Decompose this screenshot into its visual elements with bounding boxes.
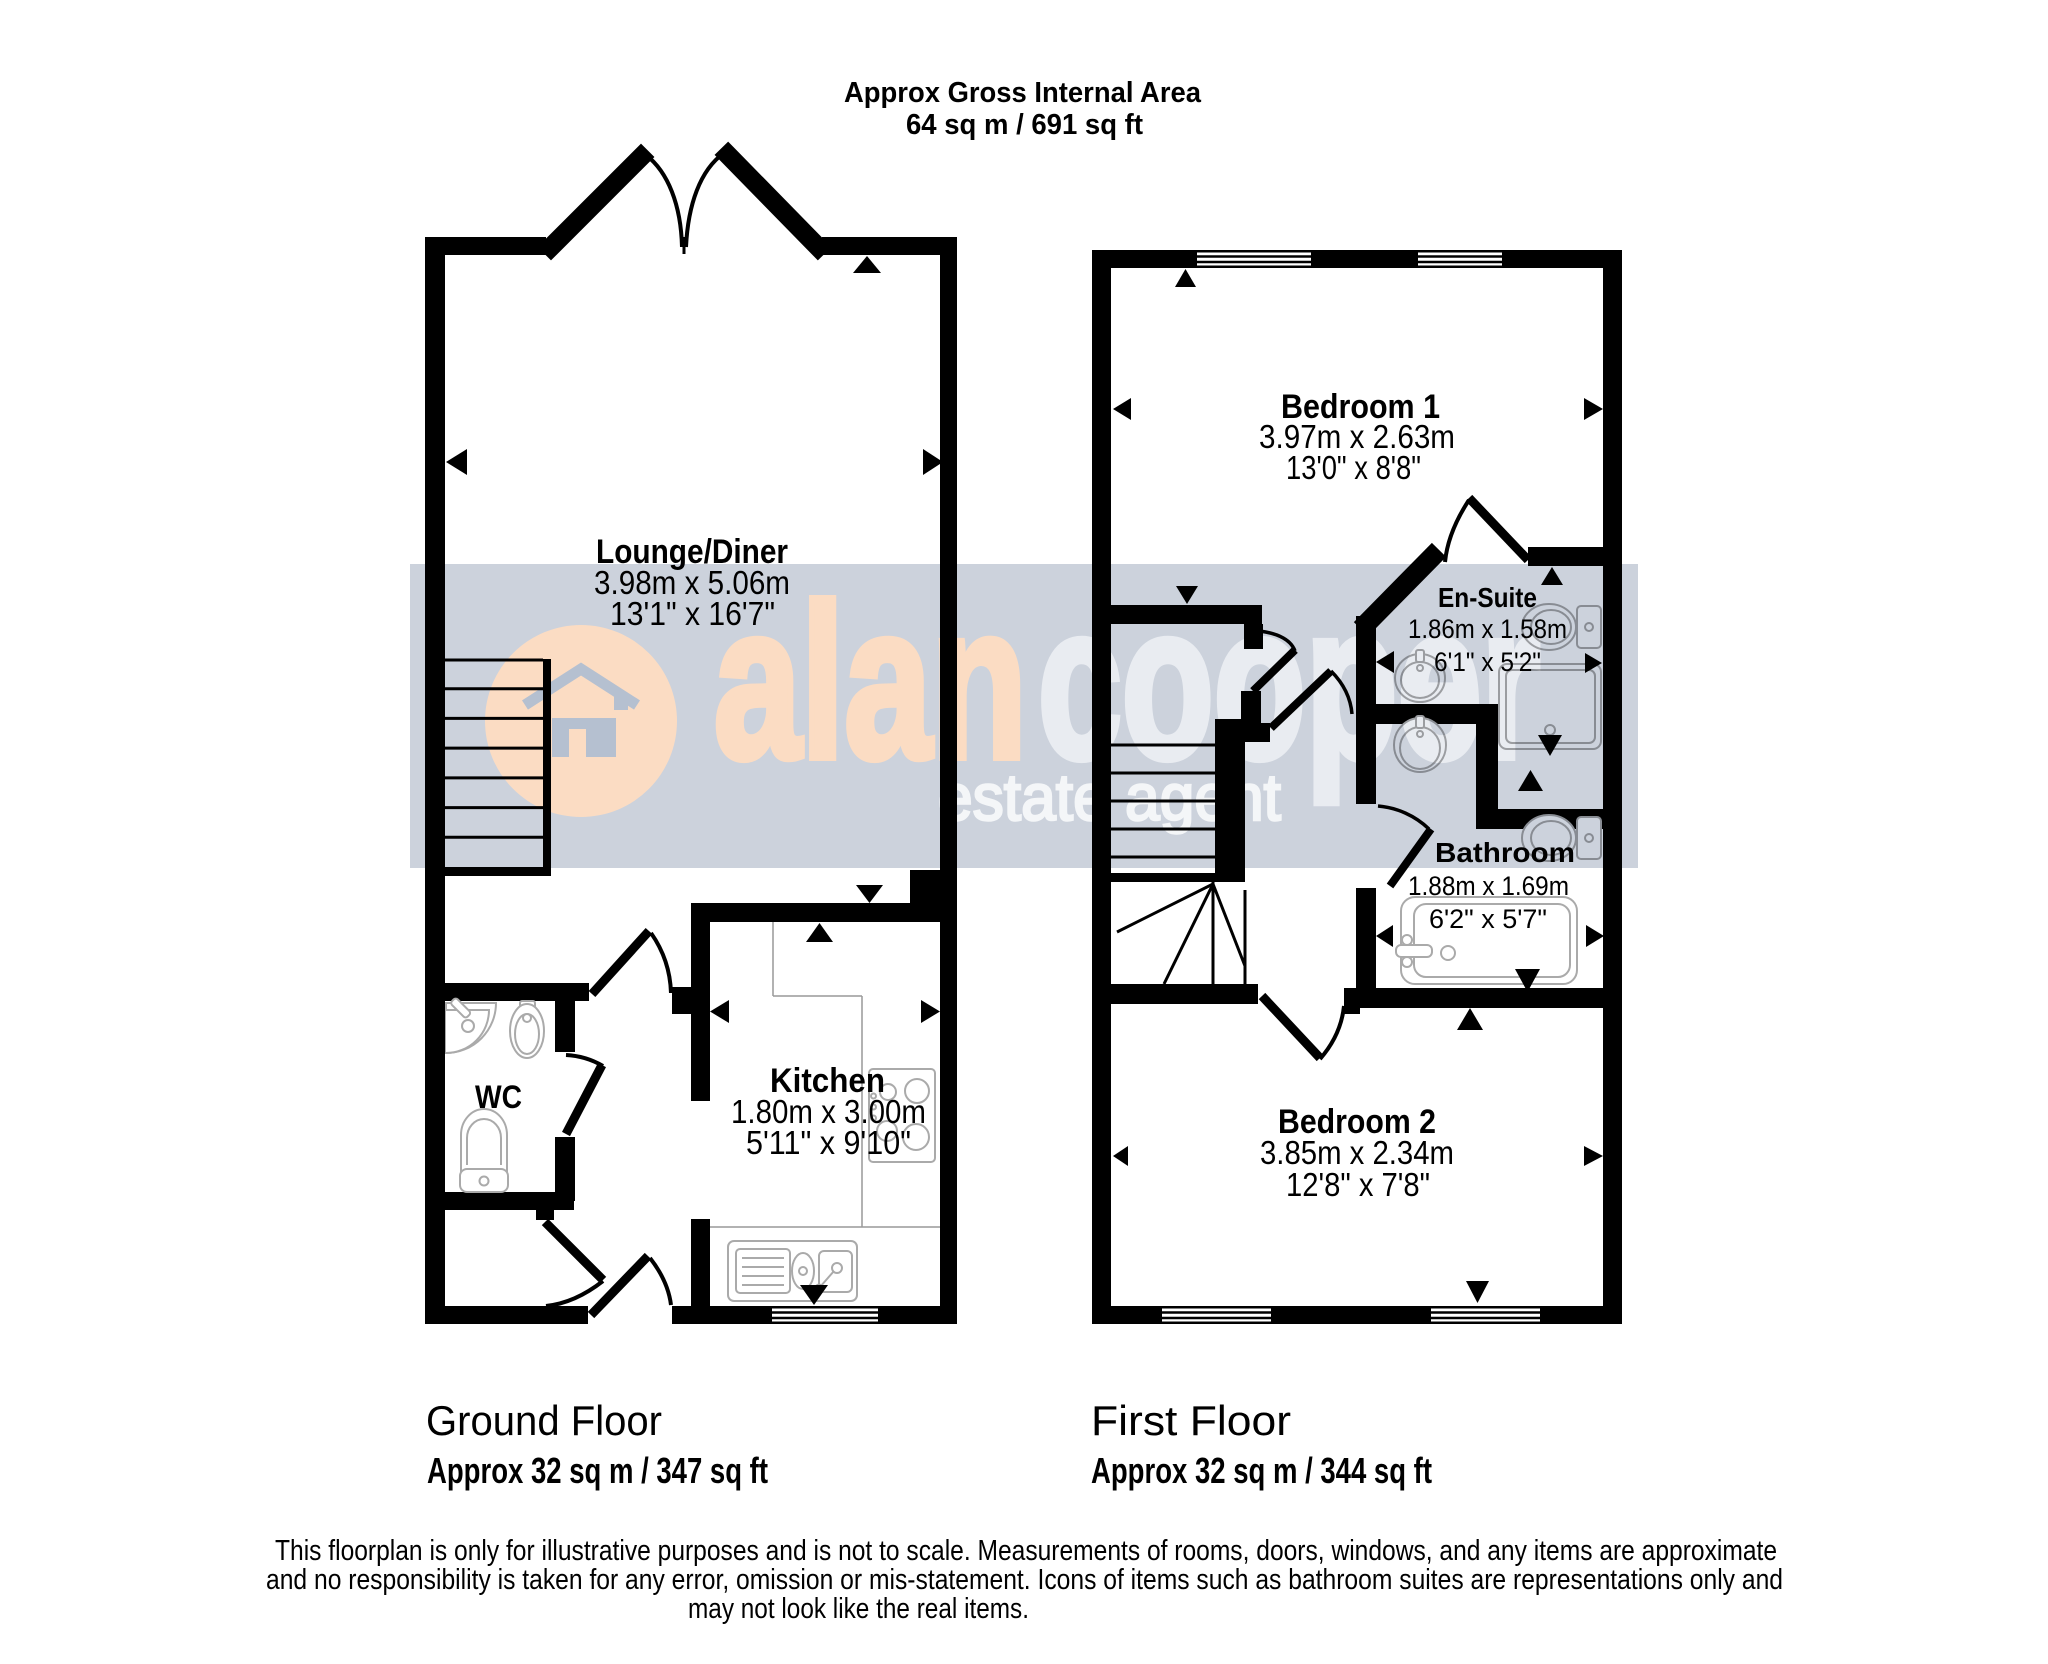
svg-text:may not look like the real ite: may not look like the real items. — [688, 1593, 1029, 1625]
svg-text:13'0" x 8'8": 13'0" x 8'8" — [1286, 449, 1421, 486]
svg-text:This floorplan is only for ill: This floorplan is only for illustrative … — [275, 1535, 1777, 1567]
svg-text:6'2" x 5'7": 6'2" x 5'7" — [1429, 904, 1547, 934]
svg-text:estate agent: estate agent — [938, 760, 1281, 834]
svg-text:First Floor: First Floor — [1091, 1397, 1291, 1444]
svg-text:Approx 32 sq m / 344 sq ft: Approx 32 sq m / 344 sq ft — [1091, 1450, 1432, 1491]
svg-text:64 sq m / 691 sq ft: 64 sq m / 691 sq ft — [906, 109, 1143, 141]
svg-text:and no responsibility is taken: and no responsibility is taken for any e… — [266, 1564, 1783, 1596]
svg-text:5'11" x 9'10": 5'11" x 9'10" — [746, 1124, 911, 1161]
svg-text:Approx 32 sq m / 347 sq ft: Approx 32 sq m / 347 sq ft — [427, 1450, 768, 1491]
svg-text:1.88m x 1.69m: 1.88m x 1.69m — [1408, 871, 1569, 901]
svg-text:Ground Floor: Ground Floor — [426, 1397, 662, 1444]
svg-text:12'8" x 7'8": 12'8" x 7'8" — [1286, 1166, 1430, 1203]
svg-text:Approx Gross Internal Area: Approx Gross Internal Area — [844, 77, 1202, 109]
